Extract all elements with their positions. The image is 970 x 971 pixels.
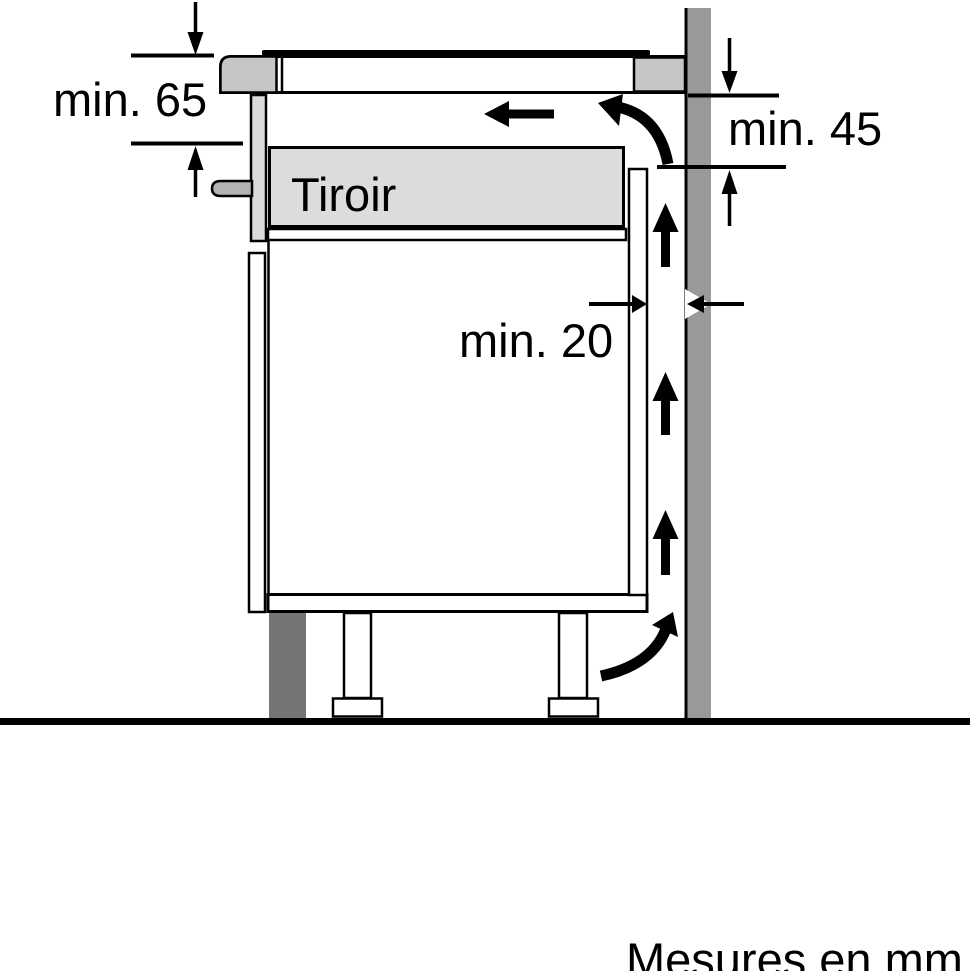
cabinet-back-panel [629, 169, 647, 595]
units-note: Mesures en mm [626, 933, 963, 971]
cabinet-front-panel [249, 253, 265, 612]
hob-left-trim [221, 57, 277, 93]
plinth [269, 613, 306, 718]
dim-min65-label: min. 65 [53, 73, 207, 126]
cabinet-bottom-panel [268, 595, 647, 612]
cabinet-leg-left [333, 613, 382, 717]
dim-min20-label: min. 20 [459, 314, 613, 367]
airflow-left-arrow [484, 101, 554, 127]
airflow-up-arrow-1 [653, 203, 679, 267]
drawer-handle [212, 181, 252, 196]
hob-right-trim [634, 58, 685, 92]
airflow-up-arrow-2 [653, 372, 679, 435]
drawer-label: Tiroir [291, 168, 396, 221]
installation-diagram: Tiroir min. 65 min. 45 min. 20 [0, 0, 970, 971]
dim-min45-label: min. 45 [728, 102, 882, 155]
wall-edge-line [685, 8, 688, 718]
airflow-curve-bottom [601, 612, 678, 676]
airflow-up-arrows [653, 203, 679, 575]
worktop-hob-body [221, 57, 685, 93]
airflow-up-arrow-3 [653, 510, 679, 575]
cabinet-leg-right [549, 613, 598, 717]
floor-line [0, 718, 970, 725]
drawer-bottom-band [268, 229, 626, 240]
hob-glass-line [262, 50, 650, 56]
wall [685, 8, 712, 718]
drawer-front-rail [251, 95, 266, 241]
